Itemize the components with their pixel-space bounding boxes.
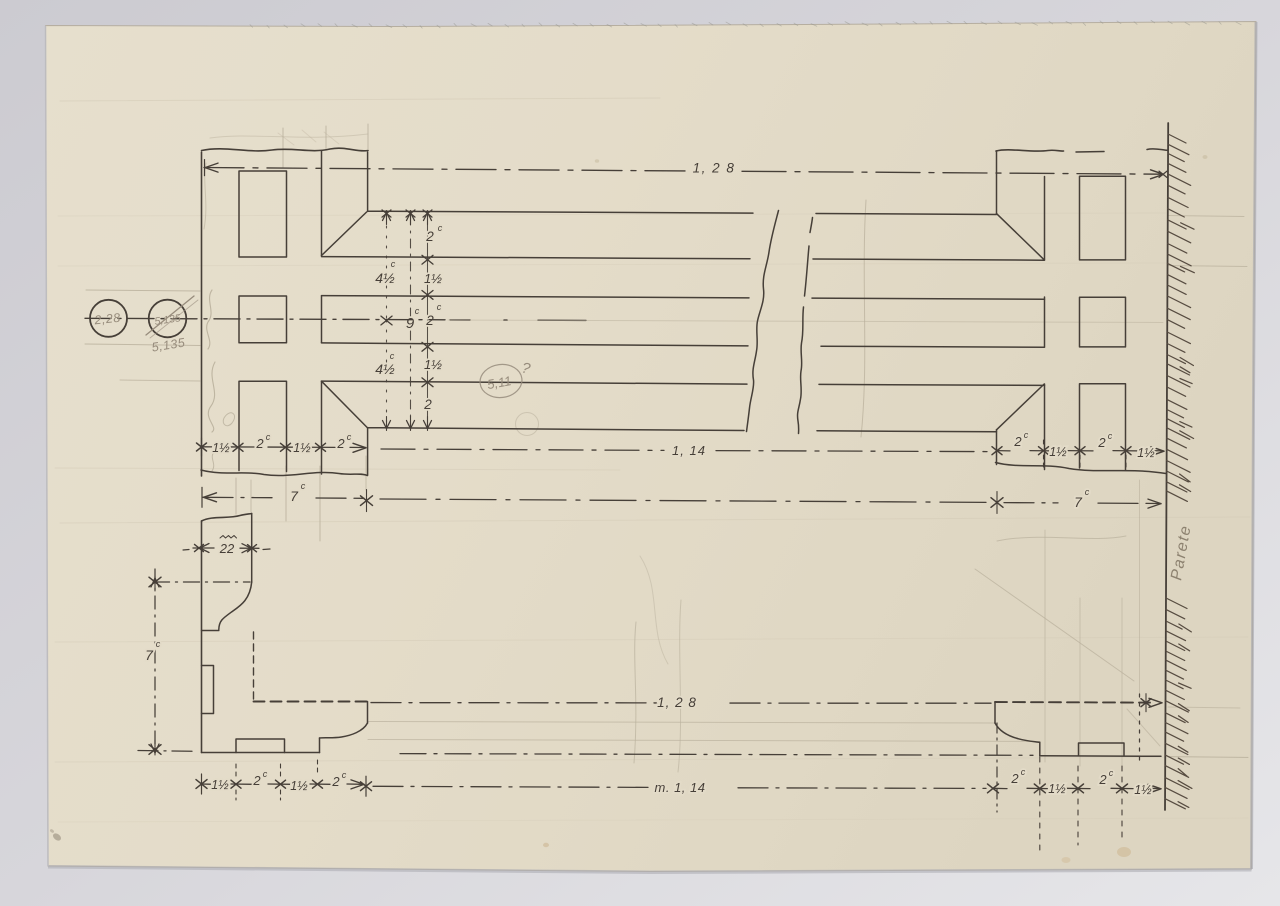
svg-text:2: 2 <box>1010 771 1019 786</box>
svg-text:9: 9 <box>406 315 415 332</box>
svg-text:c: c <box>415 306 420 316</box>
svg-text:c: c <box>391 259 396 269</box>
svg-text:22: 22 <box>219 541 235 556</box>
svg-text:c: c <box>156 639 161 649</box>
svg-text:1½: 1½ <box>290 779 308 793</box>
svg-text:2: 2 <box>1013 434 1022 449</box>
svg-text:2: 2 <box>255 436 264 451</box>
svg-text:c: c <box>342 770 347 780</box>
svg-text:c: c <box>1085 487 1090 497</box>
svg-text:c: c <box>263 769 268 779</box>
svg-text:2: 2 <box>423 397 432 412</box>
svg-text:c: c <box>390 351 395 361</box>
svg-text:1, 2 8: 1, 2 8 <box>693 161 736 176</box>
svg-text:1, 14: 1, 14 <box>672 443 706 458</box>
svg-text:1½: 1½ <box>1134 783 1152 797</box>
svg-text:1½: 1½ <box>1137 446 1155 460</box>
svg-text:2: 2 <box>425 313 434 328</box>
svg-text:2: 2 <box>252 773 261 788</box>
svg-text:c: c <box>301 481 306 491</box>
svg-text:1½: 1½ <box>1048 782 1066 796</box>
svg-text:2: 2 <box>1097 435 1106 450</box>
svg-text:c: c <box>1108 431 1113 441</box>
svg-text:c: c <box>1021 767 1026 777</box>
svg-text:1½: 1½ <box>211 778 229 792</box>
svg-text:1½: 1½ <box>1049 445 1067 459</box>
svg-text:c: c <box>1024 430 1029 440</box>
svg-text:2: 2 <box>331 774 340 789</box>
svg-text:1½: 1½ <box>293 441 311 455</box>
svg-text:4½: 4½ <box>375 270 395 286</box>
svg-text:1, 2 8: 1, 2 8 <box>657 695 697 710</box>
svg-text:7: 7 <box>1074 494 1083 510</box>
svg-text:1½: 1½ <box>424 271 442 286</box>
svg-text:7: 7 <box>290 488 299 504</box>
svg-text:4½: 4½ <box>375 361 395 377</box>
svg-text:7: 7 <box>145 647 154 663</box>
svg-text:c: c <box>438 223 443 233</box>
svg-text:2,28: 2,28 <box>93 311 122 328</box>
svg-text:1½: 1½ <box>212 441 230 455</box>
svg-text:c: c <box>266 432 271 442</box>
svg-text:1½: 1½ <box>424 357 442 372</box>
svg-text:2: 2 <box>425 229 434 244</box>
svg-text:m. 1, 14: m. 1, 14 <box>655 780 706 795</box>
svg-text:c: c <box>437 302 442 312</box>
svg-text:2: 2 <box>336 436 345 451</box>
svg-text:c: c <box>1109 768 1114 778</box>
svg-text:2: 2 <box>1098 772 1107 787</box>
svg-text:c: c <box>347 432 352 442</box>
